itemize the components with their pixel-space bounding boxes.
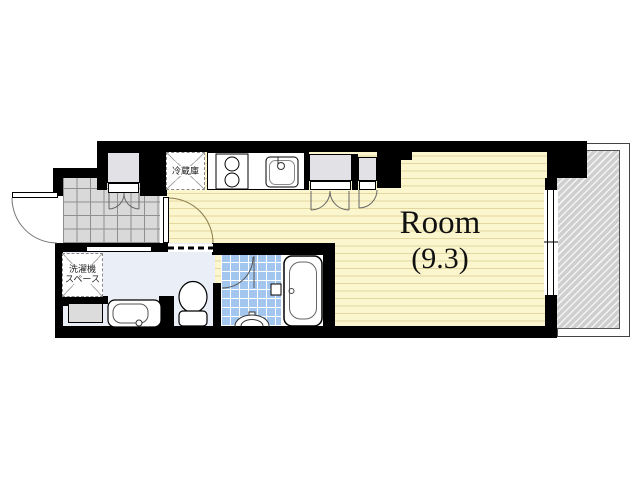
room-label: Room [375, 206, 505, 240]
fixtures-layer [0, 0, 640, 480]
shoe-closet-doors [109, 193, 139, 209]
vanity-sink [108, 300, 161, 327]
bathtub [284, 256, 322, 326]
entry-door-swing [12, 198, 57, 243]
room-size-label: (9.3) [375, 243, 505, 275]
kitchen-sink [266, 157, 298, 187]
bath-wall-box [271, 284, 281, 295]
window-frame [544, 190, 558, 295]
floor-plan: 冷蔵庫 洗濯機 スペース [0, 0, 640, 480]
toilet [179, 282, 207, 327]
bathroom-door-swing [222, 256, 254, 288]
kitchen-door-swing [169, 198, 213, 243]
stove [216, 154, 248, 189]
closet-wide-doors [311, 191, 349, 210]
shower-mixer [235, 312, 269, 326]
